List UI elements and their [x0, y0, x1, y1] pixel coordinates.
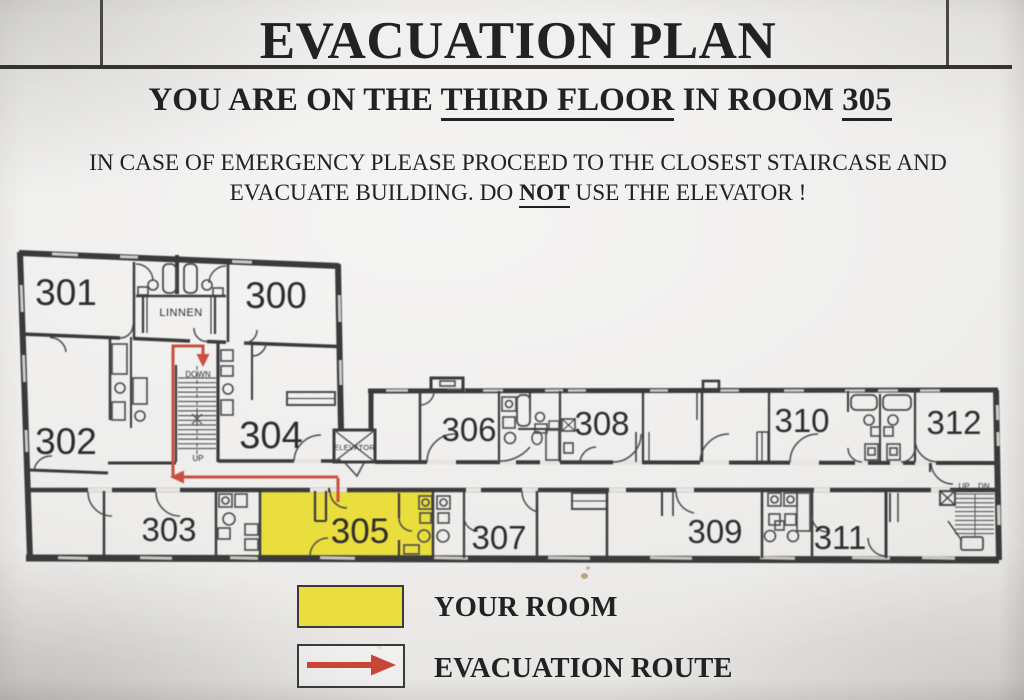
svg-text:307: 307 — [471, 519, 526, 556]
svg-text:UP: UP — [958, 482, 969, 491]
svg-text:300: 300 — [245, 275, 307, 316]
svg-text:DOWN: DOWN — [185, 370, 211, 379]
svg-text:305: 305 — [331, 512, 389, 551]
svg-text:UP: UP — [192, 454, 203, 463]
svg-text:DN.: DN. — [978, 482, 992, 491]
svg-text:302: 302 — [35, 421, 97, 462]
svg-text:303: 303 — [141, 511, 196, 548]
svg-text:311: 311 — [814, 519, 867, 556]
svg-text:ELEVATOR: ELEVATOR — [334, 443, 375, 452]
svg-text:304: 304 — [239, 415, 302, 457]
svg-text:310: 310 — [774, 402, 829, 439]
svg-text:308: 308 — [574, 405, 629, 442]
svg-text:312: 312 — [926, 404, 981, 441]
svg-text:306: 306 — [441, 411, 496, 448]
svg-text:309: 309 — [687, 513, 742, 550]
svg-text:LINNEN: LINNEN — [159, 307, 202, 319]
svg-text:301: 301 — [35, 272, 97, 313]
